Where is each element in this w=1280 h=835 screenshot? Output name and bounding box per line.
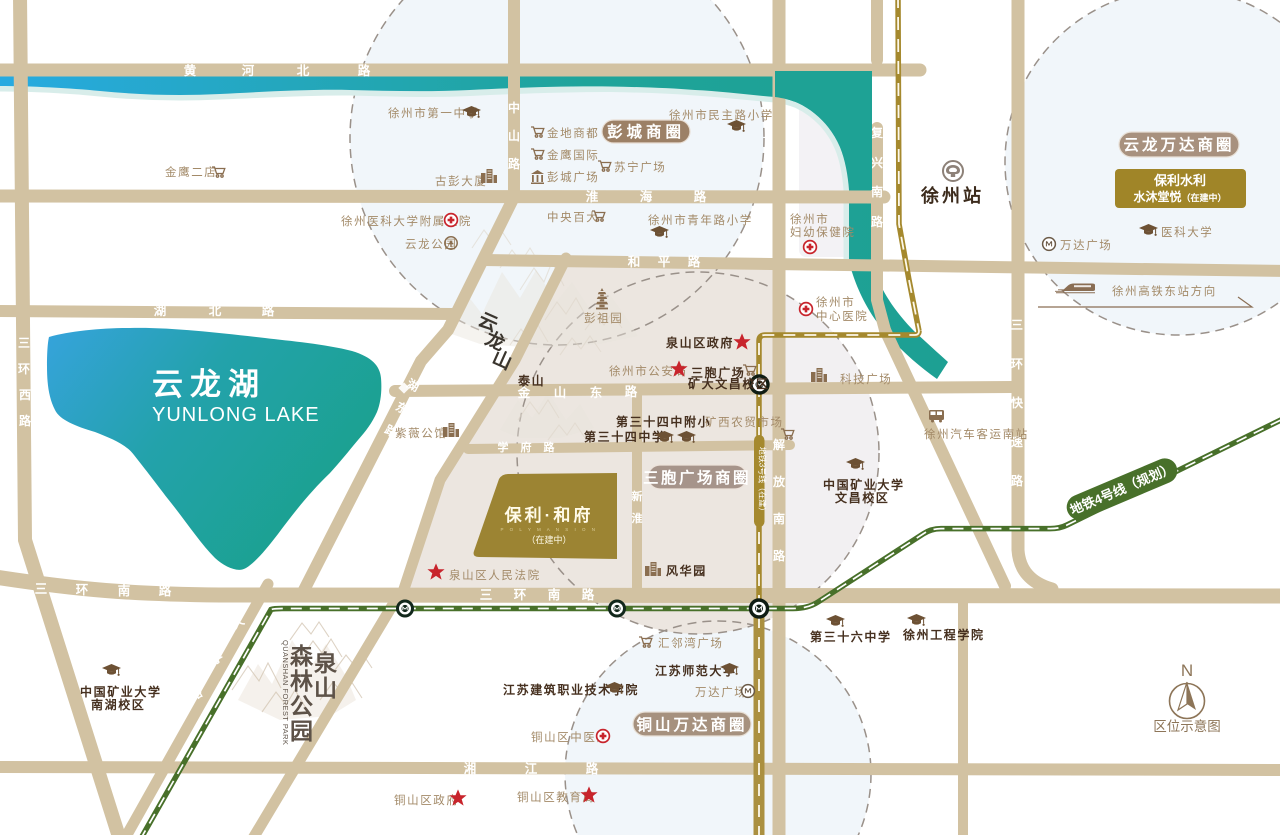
svg-text:环: 环 — [18, 362, 30, 376]
svg-text:学: 学 — [498, 440, 509, 454]
svg-text:山: 山 — [554, 385, 567, 400]
svg-text:西: 西 — [19, 388, 31, 402]
svg-text:第三十四中附小: 第三十四中附小 — [616, 414, 711, 429]
svg-text:林: 林 — [290, 668, 313, 694]
svg-text:海: 海 — [640, 189, 653, 204]
svg-text:医科大学: 医科大学 — [1161, 225, 1213, 239]
svg-text:路: 路 — [586, 761, 599, 776]
svg-text:园: 园 — [290, 718, 313, 744]
svg-text:南: 南 — [871, 184, 883, 199]
svg-text:彭祖园: 彭祖园 — [584, 311, 623, 325]
svg-text:路: 路 — [358, 63, 371, 78]
svg-text:南: 南 — [118, 583, 131, 598]
svg-text:路: 路 — [871, 214, 884, 229]
svg-text:泰山: 泰山 — [517, 373, 545, 388]
svg-text:彭城广场: 彭城广场 — [547, 170, 599, 184]
svg-text:南: 南 — [773, 511, 785, 526]
svg-text:地铁3号线（在建）: 地铁3号线（在建） — [758, 447, 768, 515]
svg-text:南: 南 — [548, 587, 561, 602]
svg-text:山: 山 — [314, 675, 337, 701]
svg-text:森: 森 — [290, 643, 314, 669]
svg-text:古彭大厦: 古彭大厦 — [435, 174, 487, 188]
svg-text:东: 东 — [590, 385, 603, 400]
svg-text:路: 路 — [19, 413, 32, 428]
svg-text:湘: 湘 — [464, 761, 477, 776]
svg-text:紫薇公馆: 紫薇公馆 — [395, 426, 447, 440]
svg-text:黄: 黄 — [184, 63, 197, 78]
svg-text:三: 三 — [1011, 318, 1023, 332]
svg-text:环: 环 — [1011, 357, 1023, 371]
svg-text:平: 平 — [658, 255, 671, 269]
svg-text:快: 快 — [1011, 395, 1024, 410]
svg-text:中: 中 — [508, 100, 520, 115]
svg-text:北: 北 — [297, 63, 310, 78]
svg-text:淮: 淮 — [632, 511, 643, 525]
svg-text:徐州市民主路小学: 徐州市民主路小学 — [669, 108, 774, 122]
svg-text:三: 三 — [35, 582, 48, 596]
svg-text:徐州市青年路小学: 徐州市青年路小学 — [648, 213, 753, 227]
svg-text:府: 府 — [521, 440, 532, 454]
svg-text:矿大文昌校区: 矿大文昌校区 — [688, 376, 770, 391]
svg-text:保利·和府: 保利·和府 — [504, 505, 594, 525]
svg-text:云龙万达商圈: 云龙万达商圈 — [1123, 135, 1234, 154]
svg-text:风华园: 风华园 — [666, 563, 707, 578]
svg-text:路: 路 — [159, 583, 172, 598]
svg-text:云龙湖: 云龙湖 — [152, 367, 266, 402]
svg-text:徐州市第一中学: 徐州市第一中学 — [388, 106, 480, 120]
svg-text:N: N — [1181, 661, 1193, 680]
svg-text:科技广场: 科技广场 — [840, 372, 892, 386]
svg-text:和: 和 — [627, 254, 641, 269]
svg-text:第三十四中学: 第三十四中学 — [584, 429, 666, 444]
svg-text:（在建中）: （在建中） — [526, 534, 571, 545]
svg-text:南湖校区: 南湖校区 — [91, 697, 145, 712]
svg-text:YUNLONG LAKE: YUNLONG LAKE — [152, 404, 320, 426]
svg-text:矿西农贸市场: 矿西农贸市场 — [705, 415, 784, 429]
svg-text:环: 环 — [514, 588, 527, 602]
svg-text:兴: 兴 — [871, 155, 883, 170]
svg-text:金地商都: 金地商都 — [547, 126, 599, 140]
svg-text:中心医院: 中心医院 — [816, 309, 868, 323]
svg-text:万达广场: 万达广场 — [695, 685, 747, 699]
svg-text:徐州工程学院: 徐州工程学院 — [902, 627, 985, 642]
svg-text:徐州高铁东站方向: 徐州高铁东站方向 — [1112, 284, 1217, 298]
svg-text:放: 放 — [772, 474, 786, 489]
svg-text:彭城商圈: 彭城商圈 — [607, 122, 685, 141]
svg-text:路: 路 — [688, 254, 701, 269]
svg-text:复: 复 — [870, 125, 884, 140]
svg-text:徐州站: 徐州站 — [920, 185, 984, 206]
svg-text:三: 三 — [18, 336, 30, 350]
svg-text:解: 解 — [773, 437, 785, 452]
svg-text:路: 路 — [625, 384, 638, 399]
svg-text:金鹰国际: 金鹰国际 — [547, 148, 599, 162]
svg-text:万达广场: 万达广场 — [1060, 238, 1112, 252]
svg-text:河: 河 — [242, 63, 255, 78]
svg-text:泉山区人民法院: 泉山区人民法院 — [449, 568, 541, 582]
svg-text:北: 北 — [209, 303, 222, 318]
svg-text:徐州汽车客运南站: 徐州汽车客运南站 — [924, 427, 1029, 441]
svg-text:路: 路 — [582, 587, 595, 602]
svg-text:徐州市: 徐州市 — [816, 295, 855, 309]
svg-text:路: 路 — [262, 303, 275, 318]
svg-text:湖: 湖 — [154, 303, 167, 318]
svg-text:泉山区政府: 泉山区政府 — [666, 335, 734, 350]
svg-text:铜山万达商圈: 铜山万达商圈 — [636, 715, 747, 734]
svg-text:江: 江 — [525, 761, 538, 776]
svg-text:三胞广场商圈: 三胞广场商圈 — [643, 468, 751, 487]
svg-text:中央百大: 中央百大 — [547, 210, 599, 224]
svg-text:第三十六中学: 第三十六中学 — [810, 629, 892, 644]
svg-text:泉: 泉 — [314, 650, 338, 676]
svg-text:苏宁广场: 苏宁广场 — [614, 160, 666, 174]
svg-text:淮: 淮 — [586, 189, 599, 204]
svg-text:P O L Y M A N S I O N: P O L Y M A N S I O N — [500, 527, 597, 532]
svg-text:路: 路 — [508, 156, 521, 171]
svg-text:汇邻湾广场: 汇邻湾广场 — [658, 636, 724, 650]
svg-text:公: 公 — [290, 693, 313, 719]
svg-text:三: 三 — [480, 588, 493, 602]
svg-text:区位示意图: 区位示意图 — [1153, 718, 1221, 734]
svg-text:铜山区政府: 铜山区政府 — [394, 793, 460, 807]
svg-text:徐州市: 徐州市 — [790, 212, 829, 226]
svg-text:山: 山 — [508, 128, 520, 143]
svg-text:中国矿业大学: 中国矿业大学 — [823, 477, 905, 492]
svg-text:中国矿业大学: 中国矿业大学 — [80, 684, 162, 699]
svg-text:路: 路 — [773, 548, 786, 563]
svg-text:妇幼保健院: 妇幼保健院 — [790, 225, 856, 239]
svg-text:金鹰二店: 金鹰二店 — [165, 165, 217, 179]
svg-text:新: 新 — [632, 489, 643, 503]
svg-text:路: 路 — [694, 189, 707, 204]
svg-text:环: 环 — [76, 583, 89, 597]
svg-text:保利水利: 保利水利 — [1153, 173, 1206, 188]
svg-text:路: 路 — [544, 440, 556, 454]
svg-text:文昌校区: 文昌校区 — [835, 490, 889, 505]
svg-text:QUANSHAN FOREST PARK: QUANSHAN FOREST PARK — [281, 640, 290, 745]
svg-text:路: 路 — [1011, 473, 1024, 488]
